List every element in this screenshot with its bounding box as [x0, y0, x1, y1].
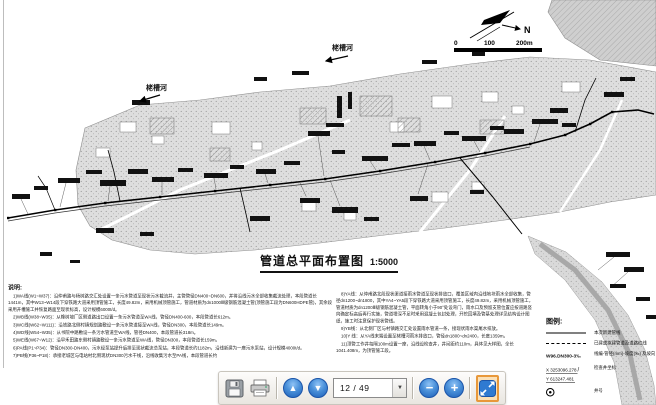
- svg-text:N: N: [524, 25, 531, 35]
- note-item: 11)顶管工作井每隔100m设置一座，沿线设检查井，井间距约110m，具体见大样…: [336, 341, 534, 354]
- zoom-in-button[interactable]: +: [444, 378, 464, 398]
- pipe-label-symbol: W96.DN300-3‰: [546, 354, 581, 360]
- note-item: 9)YB线：从北侧厂区与村镇路交汇处设置雨水管道一条，接现状雨水渠尾水排放。: [336, 326, 534, 333]
- legend-item-coordinates: X 3253096.278/ Y 613247.481 检查井坐标: [546, 365, 656, 383]
- chevron-down-icon: ▼: [397, 385, 403, 391]
- legend-item-pipe-label: W96.DN300-3‰ 线编-管径(mm)-坡度(‰) 及坡向: [546, 351, 656, 360]
- page-down-button[interactable]: ▼: [308, 378, 328, 398]
- save-button[interactable]: [225, 379, 244, 398]
- note-item: 2)WB线(W38~W35)：从橡树坡厂区侧道路出口设置一条污水管道至WA线，管…: [8, 314, 333, 321]
- page-number-value[interactable]: 12 / 49: [334, 383, 392, 393]
- toolbar-separator: [276, 377, 278, 399]
- zoom-out-icon: −: [426, 381, 434, 394]
- legend: 图例: 本次新建管线 已建或拟建管道及道路红线 W96.DN300-3‰ 线编-…: [546, 316, 656, 402]
- page-up-icon: ▲: [289, 384, 298, 393]
- river-label-north: 栳槽河: [326, 43, 353, 61]
- svg-text:栳槽河: 栳槽河: [146, 83, 167, 92]
- fit-page-icon: [479, 380, 496, 397]
- note-item: 8)YA线：从仲甫路北段现状渠道接雨水管道至现状排放口，覆盖区域内沿线地块雨水全…: [336, 291, 534, 325]
- page-dropdown-button[interactable]: ▼: [392, 379, 406, 397]
- scale-bar: 0 100 200m: [454, 40, 542, 52]
- note-item: 7)PB线(P36~P18)：承接老城区与电站村北侧现状DN300污水干线，沿线…: [8, 353, 333, 360]
- north-arrow-icon: N: [470, 10, 531, 41]
- page-down-icon: ▼: [314, 384, 323, 393]
- notes-header: 说明:: [8, 283, 333, 292]
- page-up-button[interactable]: ▲: [283, 378, 303, 398]
- notes-column-right: 8)YA线：从仲甫路北段现状渠道接雨水管道至现状排放口，覆盖区域内沿线地块雨水全…: [336, 291, 534, 355]
- print-button[interactable]: [249, 379, 271, 398]
- note-item: 1)WA线(W1~W37)：沿仲甫路与杨树路交汇处设置一条污水管道至现状污水截流…: [8, 293, 333, 313]
- page-number-combobox[interactable]: 12 / 49 ▼: [333, 378, 407, 398]
- note-item: 6)PA线(P1~P34)：管径DN300-DN400，污水经泵站提升后排至现状…: [8, 345, 333, 352]
- manhole-circle-symbol: [546, 388, 555, 397]
- drawing-title-text: 管道总平面布置图: [260, 252, 364, 269]
- note-item: 10)Y 线：从YA线末端设置至栳槽河雨水排放口，管径dn1800~dn2400…: [336, 333, 534, 340]
- zoom-out-button[interactable]: −: [419, 378, 439, 398]
- river-label-west: 栳槽河: [140, 83, 167, 101]
- zoom-in-icon: +: [451, 381, 459, 394]
- legend-item-new-pipeline: 本次新建管线: [546, 330, 656, 336]
- legend-item-manhole: 井号: [546, 388, 656, 397]
- svg-text:100: 100: [484, 40, 495, 47]
- print-icon: [249, 379, 271, 398]
- legend-item-existing-pipeline: 已建或拟建管道及道路红线: [546, 341, 656, 347]
- notes-column-left: 说明: 1)WA线(W1~W37)：沿仲甫路与杨树路交汇处设置一条污水管道至现状…: [8, 283, 333, 360]
- drawing-page: 栳槽河 栳槽河 N 0 100 200m 管道总平面布置图 1:5000 说明:: [0, 0, 656, 405]
- toolbar-separator: [412, 377, 414, 399]
- svg-text:200m: 200m: [516, 40, 533, 47]
- fit-to-page-button[interactable]: [476, 375, 499, 402]
- note-item: 5)WE线(W67~W12)：沿早禾田路东侧村镇路敷设一条污水管道至WA线，管径…: [8, 337, 333, 344]
- viewer-toolbar: ▲ ▼ 12 / 49 ▼ − +: [218, 371, 506, 405]
- save-icon: [225, 379, 244, 398]
- drawing-title: 管道总平面布置图 1:5000: [260, 252, 398, 273]
- coordinates-symbol: X 3253096.278/ Y 613247.481: [546, 365, 594, 383]
- dashed-line-symbol: [546, 343, 586, 344]
- note-item: 4)WD线(W54~W35)：从书院中路敷设一条污水管道至WA线，管径DN400…: [8, 330, 333, 337]
- note-item: 3)WC线(W62~W111)：沿铁路北侧村镇规划路敷设一条污水管道接至WA线，…: [8, 322, 333, 329]
- svg-text:栳槽河: 栳槽河: [332, 43, 353, 52]
- solid-line-symbol: [546, 333, 586, 334]
- toolbar-separator: [469, 377, 471, 399]
- svg-text:0: 0: [454, 40, 458, 47]
- legend-header: 图例:: [546, 316, 656, 326]
- drawing-scale-text: 1:5000: [370, 257, 398, 267]
